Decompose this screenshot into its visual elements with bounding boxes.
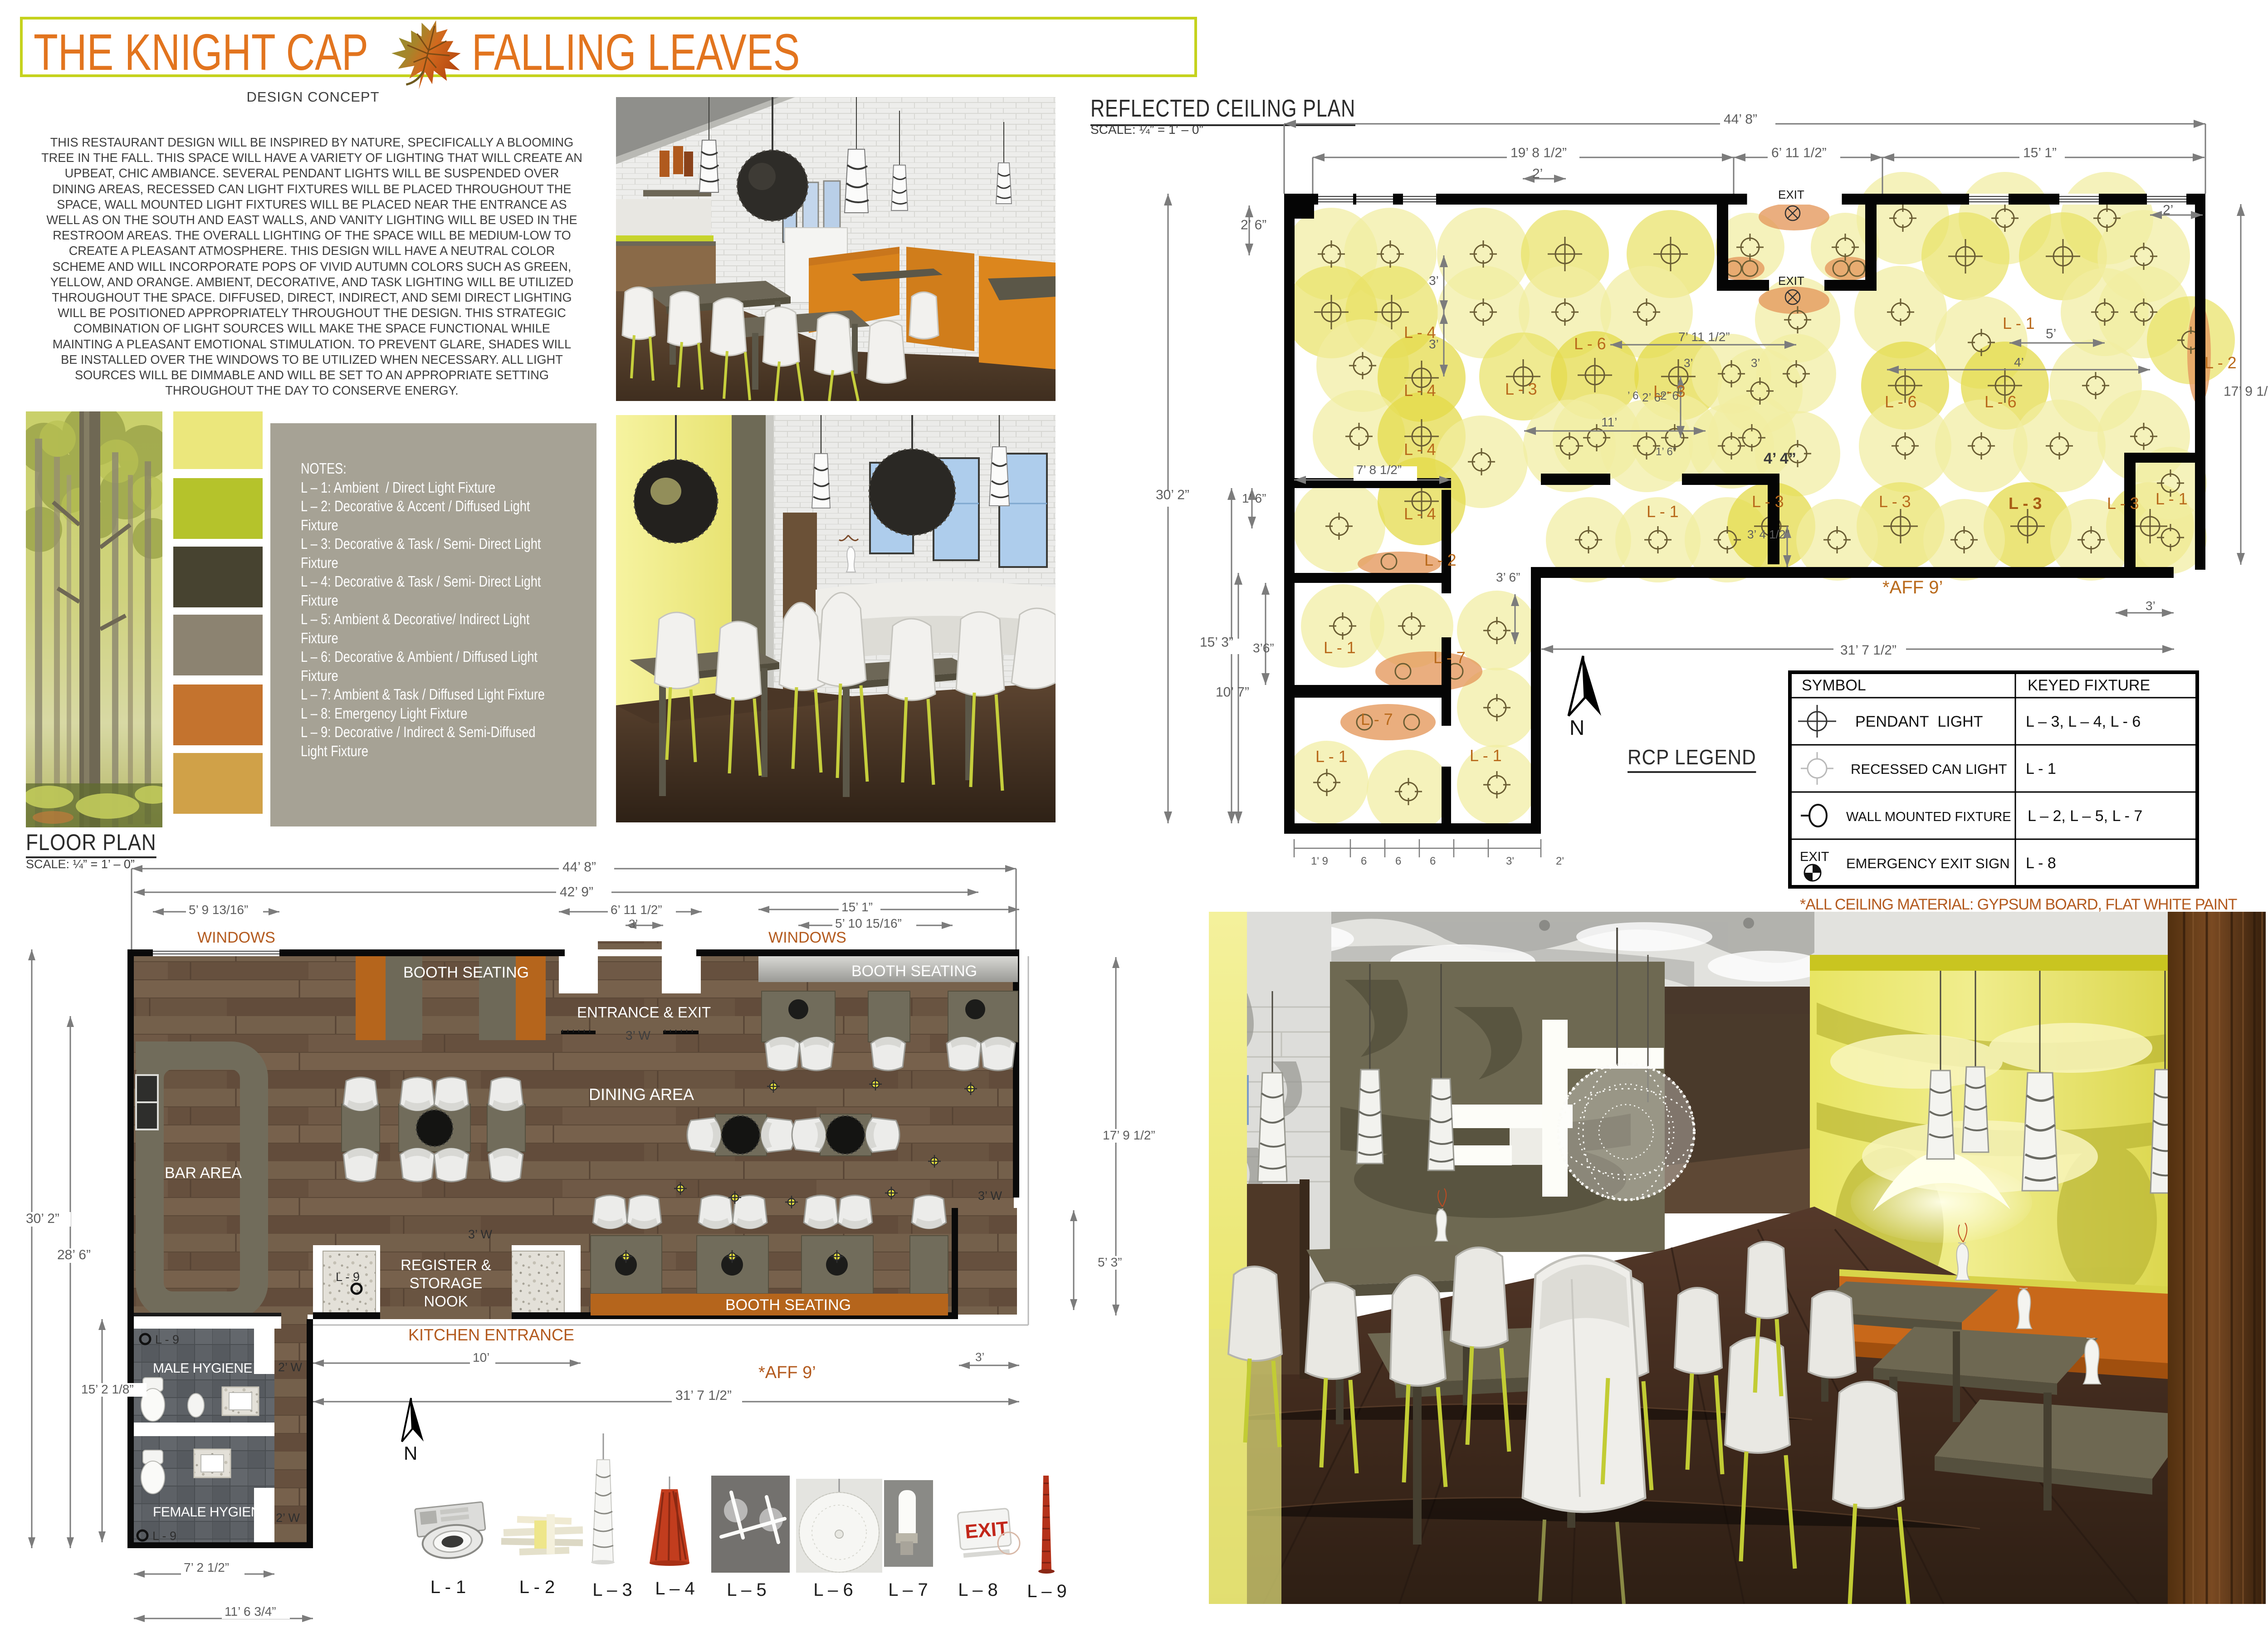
svg-text:L – 6: L – 6	[813, 1580, 853, 1600]
svg-text:5’ 9 13/16”: 5’ 9 13/16”	[189, 903, 248, 917]
svg-text:L - 1: L - 1	[1470, 746, 1502, 765]
svg-text:L – 3: L – 3	[592, 1580, 632, 1600]
svg-text:L - 3: L - 3	[1653, 382, 1686, 401]
svg-text:6: 6	[1395, 855, 1401, 867]
svg-text:15’ 2 1/8”: 15’ 2 1/8”	[81, 1382, 134, 1396]
svg-text:L - 8: L - 8	[2026, 855, 2056, 872]
svg-text:2’ W: 2’ W	[278, 1360, 303, 1374]
svg-text:L - 2: L - 2	[519, 1577, 555, 1597]
svg-text:L - 4: L - 4	[1404, 323, 1436, 342]
svg-text:3’ W: 3’ W	[626, 1028, 651, 1042]
svg-text:L - 1: L - 1	[1315, 747, 1348, 766]
svg-text:3’ W: 3’ W	[978, 1189, 1002, 1203]
svg-text:L - 9: L - 9	[152, 1529, 176, 1543]
svg-text:DINING AREA: DINING AREA	[589, 1085, 694, 1104]
svg-text:L - 2: L - 2	[1424, 551, 1457, 569]
svg-text:STORAGE: STORAGE	[410, 1275, 483, 1291]
svg-text:7’ 2 1/2”: 7’ 2 1/2”	[184, 1560, 229, 1574]
svg-text:42’ 9”: 42’ 9”	[560, 885, 593, 900]
svg-text:*AFF 9’: *AFF 9’	[1882, 577, 1943, 597]
svg-text:15’ 1”: 15’ 1”	[2023, 146, 2057, 161]
svg-text:’ 6: ’ 6	[1628, 390, 1638, 402]
svg-text:10’ 7”: 10’ 7”	[1216, 685, 1249, 700]
svg-text:31’ 7 1/2”: 31’ 7 1/2”	[675, 1388, 732, 1403]
svg-text:WALL MOUNTED FIXTURE: WALL MOUNTED FIXTURE	[1846, 810, 2011, 824]
svg-text:4’ 4”: 4’ 4”	[1764, 450, 1796, 467]
svg-text:L - 1: L - 1	[2003, 314, 2035, 332]
svg-text:NOOK: NOOK	[424, 1293, 468, 1310]
svg-text:L - 7: L - 7	[1433, 648, 1466, 667]
svg-text:N: N	[1569, 716, 1584, 738]
svg-text:15’ 3”: 15’ 3”	[1200, 635, 1233, 650]
svg-text:WINDOWS: WINDOWS	[197, 929, 275, 946]
svg-text:FEMALE HYGIENE: FEMALE HYGIENE	[153, 1505, 269, 1520]
svg-text:EMERGENCY EXIT SIGN: EMERGENCY EXIT SIGN	[1846, 856, 2010, 871]
svg-text:11’: 11’	[1601, 415, 1617, 429]
svg-text:3’: 3’	[1429, 274, 1439, 288]
svg-text:EXIT: EXIT	[964, 1517, 1009, 1543]
svg-text:L - 3: L - 3	[2107, 494, 2139, 513]
svg-text:3’6”: 3’6”	[1253, 641, 1274, 655]
svg-text:L - 1: L - 1	[430, 1577, 466, 1597]
svg-text:L - 9: L - 9	[155, 1333, 179, 1346]
svg-text:30’ 2”: 30’ 2”	[26, 1211, 59, 1226]
svg-text:L – 2, L – 5, L - 7: L – 2, L – 5, L - 7	[2028, 807, 2142, 825]
svg-text:L - 6: L - 6	[1574, 334, 1606, 353]
svg-text:KEYED FIXTURE: KEYED FIXTURE	[2028, 677, 2150, 694]
svg-text:31’ 7 1/2”: 31’ 7 1/2”	[1840, 643, 1897, 658]
svg-text:L – 9: L – 9	[1027, 1581, 1066, 1601]
svg-text:6: 6	[1361, 855, 1367, 867]
svg-text:15’ 1”: 15’ 1”	[841, 900, 873, 914]
svg-text:5’ 10 15/16”: 5’ 10 15/16”	[835, 916, 902, 930]
svg-text:7’ 8 1/2”: 7’ 8 1/2”	[1356, 463, 1402, 477]
svg-text:L – 4: L – 4	[655, 1579, 694, 1599]
svg-text:17’ 9 1/2”: 17’ 9 1/2”	[2224, 384, 2268, 399]
svg-text:10’: 10’	[473, 1350, 489, 1364]
svg-text:6’ 11 1/2”: 6’ 11 1/2”	[1771, 146, 1827, 161]
svg-text:L - 4: L - 4	[1404, 440, 1436, 459]
svg-text:L – 5: L – 5	[727, 1580, 766, 1600]
svg-text:30’ 2”: 30’ 2”	[1156, 488, 1189, 503]
svg-text:BAR AREA: BAR AREA	[165, 1164, 242, 1182]
svg-text:REGISTER &: REGISTER &	[401, 1257, 491, 1273]
svg-text:28’ 6”: 28’ 6”	[57, 1247, 91, 1262]
svg-text:MALE HYGIENE: MALE HYGIENE	[153, 1361, 252, 1376]
svg-text:L - 7: L - 7	[1361, 710, 1393, 728]
svg-text:1' 9: 1' 9	[1311, 855, 1328, 867]
svg-text:L - 3: L - 3	[1879, 492, 1911, 511]
svg-text:EXIT: EXIT	[1778, 188, 1804, 201]
svg-text:PENDANT LIGHT: PENDANT LIGHT	[1855, 713, 1983, 730]
svg-text:EXIT: EXIT	[1778, 274, 1804, 288]
svg-text:6: 6	[1430, 855, 1436, 867]
svg-text:L – 3, L – 4, L - 6: L – 3, L – 4, L - 6	[2026, 713, 2141, 730]
svg-text:L - 3: L - 3	[2009, 494, 2042, 513]
svg-text:3’ W: 3’ W	[468, 1227, 493, 1241]
svg-text:L - 1: L - 1	[1647, 502, 1679, 521]
svg-text:7’ 11 1/2”: 7’ 11 1/2”	[1678, 330, 1730, 344]
svg-text:19’ 8 1/2”: 19’ 8 1/2”	[1510, 146, 1567, 161]
svg-text:WINDOWS: WINDOWS	[768, 929, 846, 946]
svg-text:44’ 8”: 44’ 8”	[562, 860, 596, 875]
svg-text:4’: 4’	[2014, 355, 2024, 369]
svg-text:1’ 6”: 1’ 6”	[1656, 445, 1677, 458]
svg-text:L - 9: L - 9	[336, 1270, 360, 1284]
svg-text:3': 3'	[1506, 855, 1514, 867]
svg-text:BOOTH SEATING: BOOTH SEATING	[403, 964, 529, 981]
svg-text:3’: 3’	[2146, 599, 2156, 613]
svg-text:SYMBOL: SYMBOL	[1802, 677, 1866, 694]
svg-text:3’: 3’	[1751, 356, 1760, 370]
svg-text:11’ 6 3/4”: 11’ 6 3/4”	[225, 1604, 276, 1618]
svg-text:2’ 6”: 2’ 6”	[1241, 218, 1266, 233]
svg-text:3’: 3’	[975, 1350, 984, 1364]
svg-text:5’ 3”: 5’ 3”	[1098, 1255, 1122, 1269]
svg-text:2’: 2’	[1532, 166, 1543, 181]
svg-text:*AFF 9’: *AFF 9’	[758, 1363, 816, 1382]
svg-text:L - 2: L - 2	[2204, 353, 2237, 372]
svg-text:L – 8: L – 8	[958, 1580, 997, 1600]
svg-text:BOOTH SEATING: BOOTH SEATING	[851, 963, 977, 980]
svg-text:2’: 2’	[2163, 203, 2173, 218]
svg-text:L - 1: L - 1	[1324, 638, 1356, 657]
svg-text:L - 3: L - 3	[1752, 492, 1784, 511]
svg-text:L - 4: L - 4	[1404, 504, 1436, 523]
svg-text:3’: 3’	[629, 917, 638, 931]
svg-text:3’ 6”: 3’ 6”	[1496, 570, 1520, 584]
svg-text:L - 1: L - 1	[2156, 489, 2188, 508]
svg-text:L – 7: L – 7	[888, 1580, 928, 1600]
svg-text:L - 6: L - 6	[1984, 392, 2017, 411]
svg-text:BOOTH SEATING: BOOTH SEATING	[725, 1296, 851, 1314]
svg-text:RECESSED CAN LIGHT: RECESSED CAN LIGHT	[1851, 761, 2007, 777]
svg-text:2’ W: 2’ W	[276, 1511, 300, 1525]
svg-text:EXIT: EXIT	[1800, 850, 1829, 864]
svg-text:L - 4: L - 4	[1404, 381, 1436, 400]
svg-text:ENTRANCE & EXIT: ENTRANCE & EXIT	[577, 1004, 711, 1021]
svg-text:L - 3: L - 3	[1505, 380, 1537, 398]
svg-text:17’ 9 1/2”: 17’ 9 1/2”	[1103, 1128, 1155, 1142]
svg-text:L - 6: L - 6	[1885, 392, 1917, 411]
svg-text:L - 1: L - 1	[2026, 760, 2056, 777]
svg-text:2': 2'	[1556, 855, 1564, 867]
svg-text:3’: 3’	[1684, 356, 1693, 370]
svg-text:1’ 6”: 1’ 6”	[1242, 491, 1266, 505]
svg-text:5’: 5’	[2046, 327, 2056, 342]
svg-text:KITCHEN ENTRANCE: KITCHEN ENTRANCE	[408, 1325, 574, 1344]
svg-text:3’ 4 1/2”: 3’ 4 1/2”	[1747, 528, 1789, 541]
svg-text:44’ 8”: 44’ 8”	[1724, 113, 1757, 127]
svg-text:6’ 11 1/2”: 6’ 11 1/2”	[611, 903, 662, 917]
